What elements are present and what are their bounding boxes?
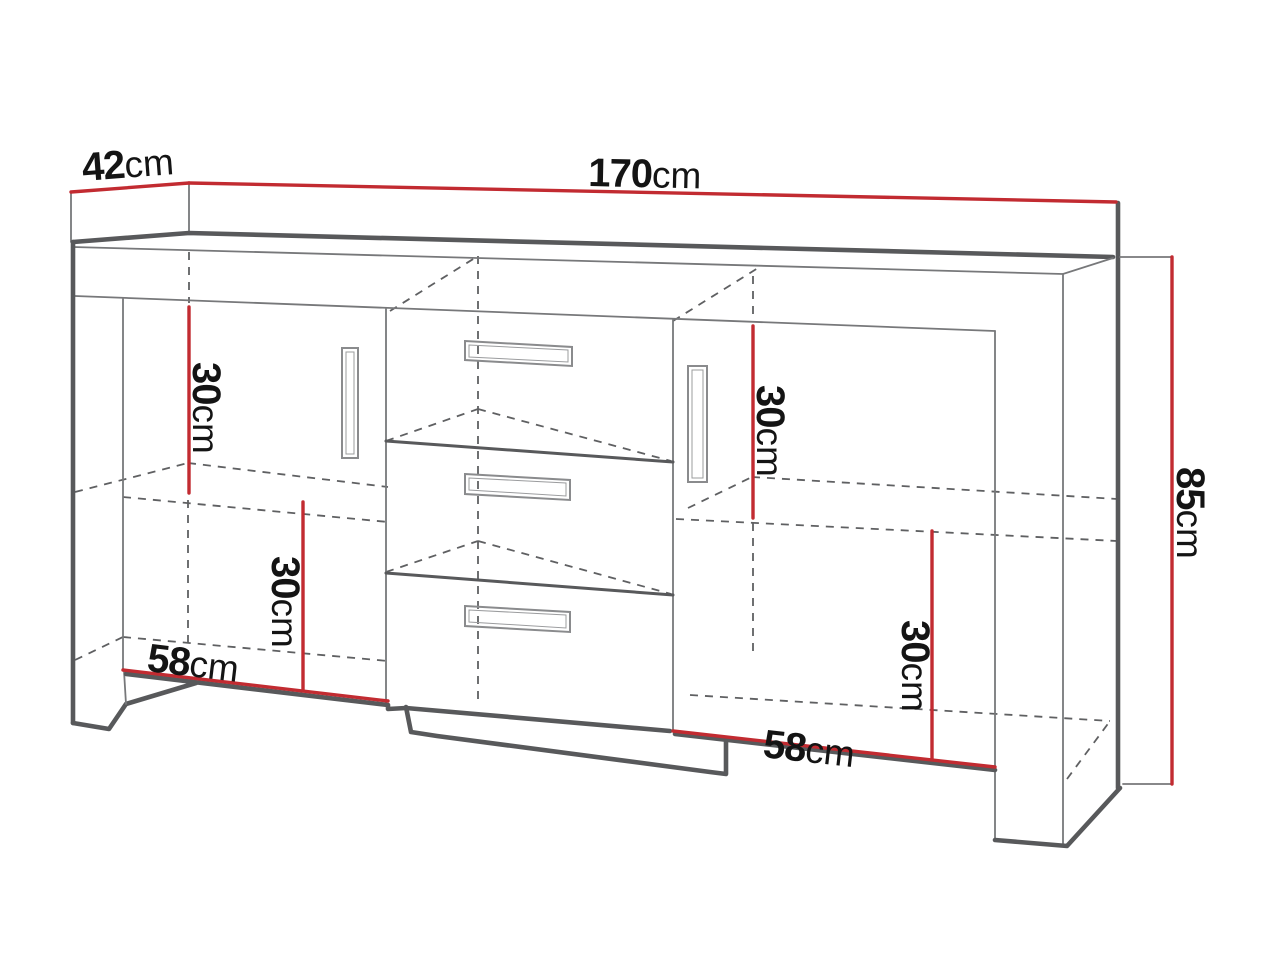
label-left-top-30: 30cm	[184, 362, 228, 454]
drawer-handle-3-inner	[469, 610, 566, 628]
drawer-divider-1	[386, 441, 673, 462]
left-door-handle	[342, 348, 358, 458]
label-depth: 42cm	[80, 139, 175, 190]
label-left-58: 58cm	[145, 636, 241, 691]
left-shelf-back-edge	[188, 463, 388, 487]
diagram-canvas: 42cm 170cm 85cm 30cm 30cm 30cm 30cm 58cm…	[0, 0, 1277, 958]
drawer2-top-right-diagonal	[478, 409, 671, 461]
right-shelf-front-edge	[676, 519, 1117, 541]
drawer-handle-2	[465, 474, 570, 500]
label-width: 170cm	[588, 151, 702, 197]
drawer-cavity-top-diagonal	[390, 256, 478, 311]
top-rail-bottom-edge	[75, 296, 995, 331]
label-right-58: 58cm	[761, 722, 857, 776]
sideboard-dimension-diagram: 42cm 170cm 85cm 30cm 30cm 30cm 30cm 58cm…	[0, 0, 1277, 958]
left-leg-bottom	[73, 683, 196, 729]
top-panel-front-edge	[73, 233, 1113, 257]
label-left-bottom-30: 30cm	[263, 556, 307, 648]
label-right-bottom-30: 30cm	[893, 620, 937, 712]
drawer-divider-2	[386, 573, 673, 595]
label-right-top-30: 30cm	[748, 385, 792, 477]
right-leg-bottom	[995, 788, 1120, 846]
drawer-handle-1	[465, 341, 572, 366]
label-height: 85cm	[1168, 467, 1212, 559]
left-door-handle-inner	[346, 352, 354, 454]
right-bottom-back-diagonal	[1067, 721, 1110, 779]
drawer-handle-3	[465, 606, 570, 632]
right-door-handle-inner	[692, 370, 703, 478]
cabinet-outline	[71, 184, 1120, 846]
hidden-edges	[75, 252, 1117, 779]
drawer-handle-1-inner	[469, 345, 568, 362]
right-door-handle	[688, 366, 707, 482]
drawer3-top-left-diagonal	[386, 541, 478, 572]
plinth	[406, 707, 726, 774]
left-bottom-back-diagonal	[75, 637, 123, 660]
drawer2-top-left-diagonal	[386, 409, 478, 441]
left-shelf-back-diagonal	[75, 463, 188, 492]
left-shelf-front-edge	[123, 497, 388, 522]
right-cavity-top-diagonal	[673, 268, 758, 321]
drawer-handle-2-inner	[469, 478, 566, 496]
